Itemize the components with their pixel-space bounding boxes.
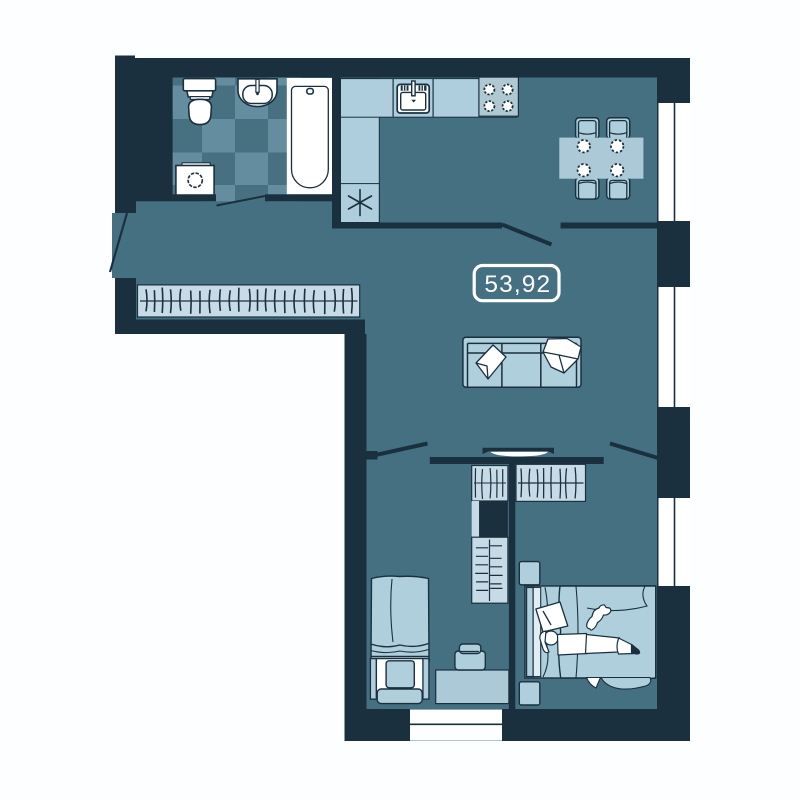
svg-text:53,92: 53,92 (484, 271, 551, 298)
